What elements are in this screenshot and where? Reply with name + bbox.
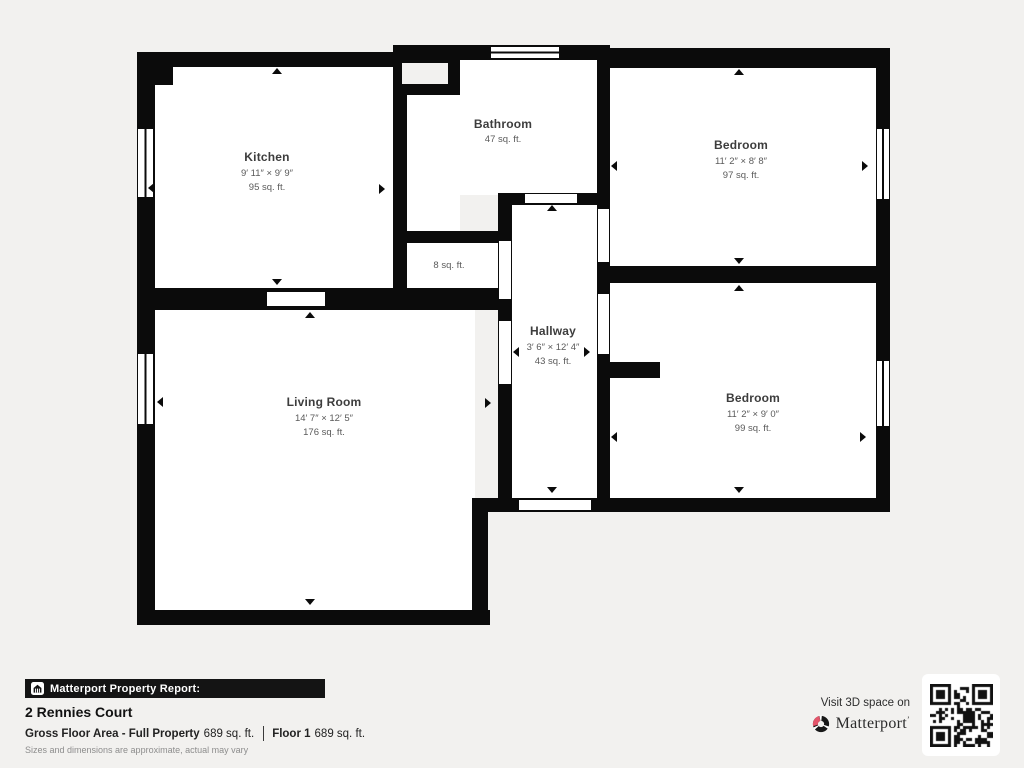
brand-name: Matterport’ — [836, 715, 910, 733]
room-label-bedroom-2: Bedroom 11′ 2″ × 9′ 0″ 99 sq. ft. — [673, 391, 833, 434]
room-name: Bathroom — [423, 117, 583, 131]
dimension-arrow — [272, 279, 282, 285]
room-dimensions: 11′ 2″ × 9′ 0″ — [673, 409, 833, 420]
door-opening — [524, 193, 578, 204]
room-name: Hallway — [493, 324, 613, 338]
exterior-notch — [402, 63, 448, 84]
brand-row: Matterport’ — [812, 715, 910, 733]
dimension-arrow — [547, 205, 557, 211]
visit-3d-text: Visit 3D space on — [821, 697, 910, 709]
window — [137, 353, 154, 425]
gross-floor-area-value: 689 sq. ft. — [204, 728, 255, 740]
room-dimensions: 14′ 7″ × 12′ 5″ — [244, 413, 404, 424]
wall — [137, 610, 490, 625]
report-header-bar: Matterport Property Report: — [25, 679, 325, 698]
dimension-arrow — [272, 68, 282, 74]
window — [876, 360, 890, 427]
room-dimensions: 9′ 11″ × 9′ 9″ — [187, 168, 347, 179]
dimension-arrow — [611, 432, 617, 442]
gross-floor-area-label: Gross Floor Area - Full Property — [25, 728, 200, 740]
wall — [597, 48, 890, 68]
dimension-arrow — [860, 432, 866, 442]
visit-3d-block: Visit 3D space on Matterport’ — [760, 697, 910, 733]
divider — [263, 726, 264, 741]
dimension-arrow — [734, 69, 744, 75]
wall — [400, 231, 512, 243]
room-dimensions: 3′ 6″ × 12′ 4″ — [493, 342, 613, 353]
dimension-arrow — [148, 183, 154, 193]
room-bathroom-annex — [407, 93, 460, 233]
qr-code — [930, 684, 993, 747]
property-name: 2 Rennies Court — [25, 704, 132, 720]
dimension-arrow — [379, 184, 385, 194]
room-name: Living Room — [244, 395, 404, 409]
room-label-living-room: Living Room 14′ 7″ × 12′ 5″ 176 sq. ft. — [244, 395, 404, 438]
window — [490, 46, 560, 59]
wall-stub — [610, 362, 660, 378]
room-area: 95 sq. ft. — [187, 182, 347, 193]
wall — [597, 266, 890, 283]
property-report-page: Kitchen 9′ 11″ × 9′ 9″ 95 sq. ft. Bathro… — [0, 0, 1024, 768]
dimension-arrow — [305, 599, 315, 605]
room-living-room — [155, 310, 475, 610]
wall — [155, 52, 407, 67]
floor-area-line: Gross Floor Area - Full Property 689 sq.… — [25, 726, 369, 741]
door-opening — [518, 499, 592, 511]
room-area: 99 sq. ft. — [673, 423, 833, 434]
room-label-bedroom-1: Bedroom 11′ 2″ × 8′ 8″ 97 sq. ft. — [661, 138, 821, 181]
room-name: Bedroom — [673, 391, 833, 405]
matterport-logo-icon — [812, 715, 830, 733]
room-area: 8 sq. ft. — [409, 260, 489, 271]
dimension-arrow — [862, 161, 868, 171]
room-name: Bedroom — [661, 138, 821, 152]
door-opening — [266, 291, 326, 307]
dimension-arrow — [157, 397, 163, 407]
door-opening — [498, 240, 512, 300]
room-name: Kitchen — [187, 150, 347, 164]
room-area: 43 sq. ft. — [493, 356, 613, 367]
room-label-kitchen: Kitchen 9′ 11″ × 9′ 9″ 95 sq. ft. — [187, 150, 347, 193]
floor-label: Floor 1 — [272, 728, 310, 740]
floor-value: 689 sq. ft. — [315, 728, 366, 740]
room-label-closet: 8 sq. ft. — [409, 260, 489, 271]
door-opening — [597, 208, 610, 263]
dimension-arrow — [734, 487, 744, 493]
room-dimensions: 11′ 2″ × 8′ 8″ — [661, 156, 821, 167]
wall — [472, 498, 488, 625]
room-area: 176 sq. ft. — [244, 427, 404, 438]
window — [876, 128, 890, 200]
room-area: 97 sq. ft. — [661, 170, 821, 181]
trademark-mark: ’ — [907, 715, 910, 724]
report-bar-label: Matterport Property Report: — [50, 683, 200, 695]
dimension-arrow — [485, 398, 491, 408]
room-area: 47 sq. ft. — [423, 134, 583, 145]
dimension-arrow — [611, 161, 617, 171]
qr-card — [922, 674, 1000, 756]
room-label-bathroom: Bathroom 47 sq. ft. — [423, 117, 583, 145]
room-label-hallway: Hallway 3′ 6″ × 12′ 4″ 43 sq. ft. — [493, 324, 613, 367]
wall — [597, 60, 610, 512]
property-icon — [31, 682, 44, 695]
dimension-arrow — [734, 258, 744, 264]
disclaimer-text: Sizes and dimensions are approximate, ac… — [25, 745, 248, 755]
dimension-arrow — [734, 285, 744, 291]
dimension-arrow — [547, 487, 557, 493]
dimension-arrow — [305, 312, 315, 318]
